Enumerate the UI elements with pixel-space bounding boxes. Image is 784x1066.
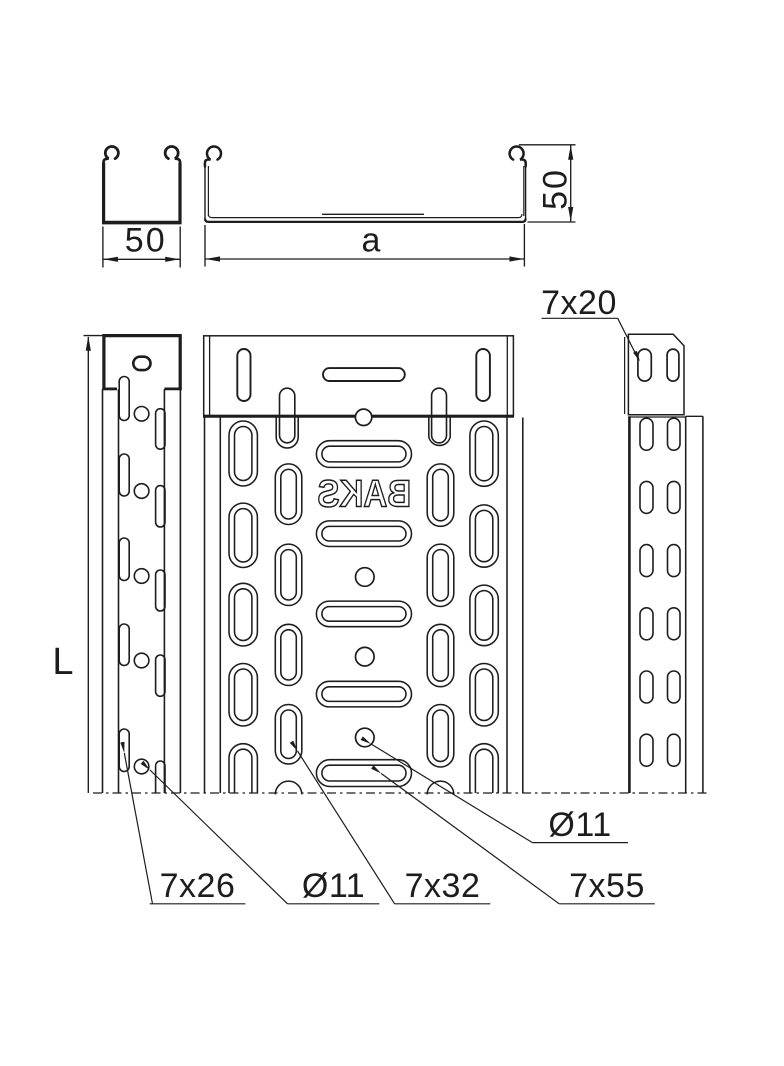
svg-text:7x55: 7x55 <box>569 867 645 905</box>
svg-text:7x20: 7x20 <box>541 284 617 322</box>
svg-text:7x32: 7x32 <box>405 867 481 905</box>
svg-text:Ø11: Ø11 <box>302 867 365 905</box>
svg-text:a: a <box>362 222 381 260</box>
svg-text:L: L <box>52 641 73 683</box>
svg-text:7x26: 7x26 <box>160 867 236 905</box>
svg-text:50: 50 <box>536 168 574 210</box>
svg-text:Ø11: Ø11 <box>548 806 611 844</box>
svg-text:BAKS: BAKS <box>317 472 411 515</box>
svg-text:50: 50 <box>125 222 167 260</box>
